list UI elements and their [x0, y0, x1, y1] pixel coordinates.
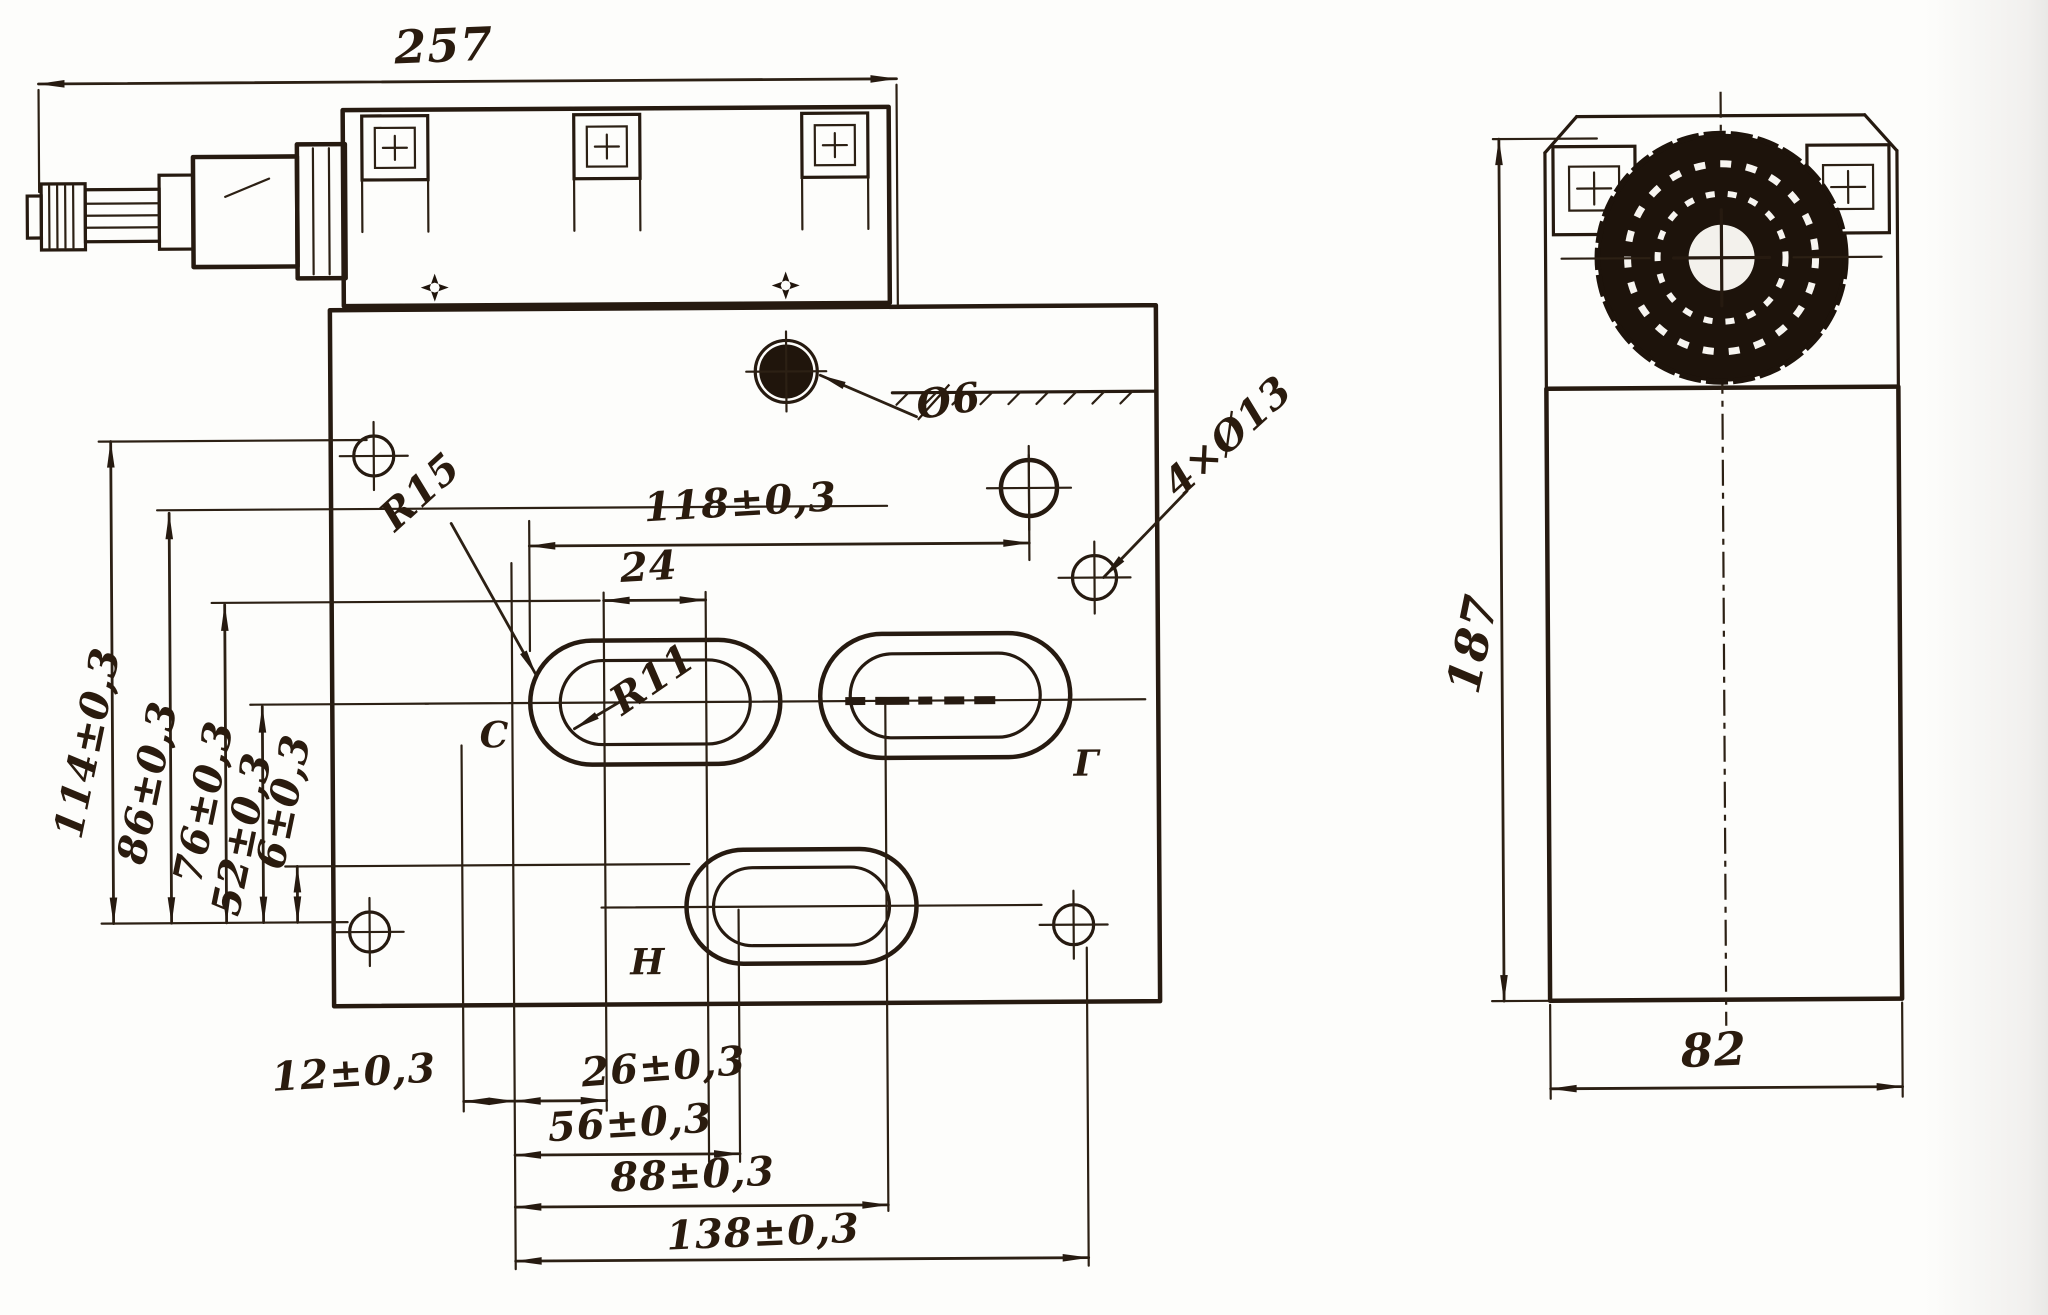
note-radius-outer: R15 [369, 443, 469, 540]
side-view: 187 82 [1432, 91, 1902, 1100]
plate-outline [330, 305, 1160, 1006]
port-label-c: С [480, 714, 510, 756]
dimensions: 257 118±0,3 24 114±0,3 86±0,3 76±0,3 52±… [38, 12, 1307, 1264]
side-body [1545, 91, 1903, 1027]
dim-138: 138±0,3 [665, 1205, 860, 1260]
note-hole-d6: Ø6 [911, 373, 984, 429]
port-label-g: Г [1073, 743, 1101, 785]
threaded-rod [85, 189, 159, 241]
dim-26: 26±0,3 [579, 1037, 748, 1096]
knurled-knob [1561, 133, 1883, 383]
plugged-hole [746, 331, 826, 411]
extension-lines [39, 84, 1089, 1272]
mounting-plate [330, 305, 1160, 1006]
center-mark [421, 274, 449, 302]
dim-56: 56±0,3 [547, 1095, 714, 1152]
valve-body-top [343, 107, 890, 306]
knurled-end-cap [27, 184, 85, 250]
center-mark [772, 271, 800, 299]
port-oval-g [820, 633, 1071, 759]
dim-118: 118±0,3 [642, 473, 838, 531]
hex-nut [297, 144, 346, 278]
bolt-hole [335, 898, 403, 966]
bolt-hole [1058, 541, 1130, 613]
drawing-sheet: 257 118±0,3 24 114±0,3 86±0,3 76±0,3 52±… [0, 0, 2048, 1315]
note-holes-4xd13: 4×Ø13 [1154, 367, 1302, 507]
stem-step [159, 175, 193, 249]
note-radius-inner: R11 [601, 634, 704, 725]
bolt-hole [1039, 890, 1107, 958]
clamp-tab [574, 114, 641, 230]
clamp-tab [802, 113, 869, 229]
front-view: 257 118±0,3 24 114±0,3 86±0,3 76±0,3 52±… [26, 12, 1307, 1272]
dim-12: 12±0,3 [270, 1044, 437, 1101]
dim-88: 88±0,3 [608, 1148, 776, 1202]
stem-cylinder [193, 156, 298, 267]
lower-port-centerline [602, 905, 1042, 908]
clamp-tab [362, 116, 429, 232]
ports-centerline [425, 699, 1145, 703]
valve-body-outline [343, 107, 890, 306]
actuator-stem [27, 144, 346, 280]
dim-overall-width: 257 [392, 17, 494, 75]
technical-drawing-svg: 257 118±0,3 24 114±0,3 86±0,3 76±0,3 52±… [0, 0, 2048, 1315]
port-label-n: Н [629, 941, 665, 983]
dim-24: 24 [618, 542, 679, 592]
dim-side-width: 82 [1679, 1021, 1748, 1078]
dim-side-height: 187 [1436, 590, 1509, 698]
